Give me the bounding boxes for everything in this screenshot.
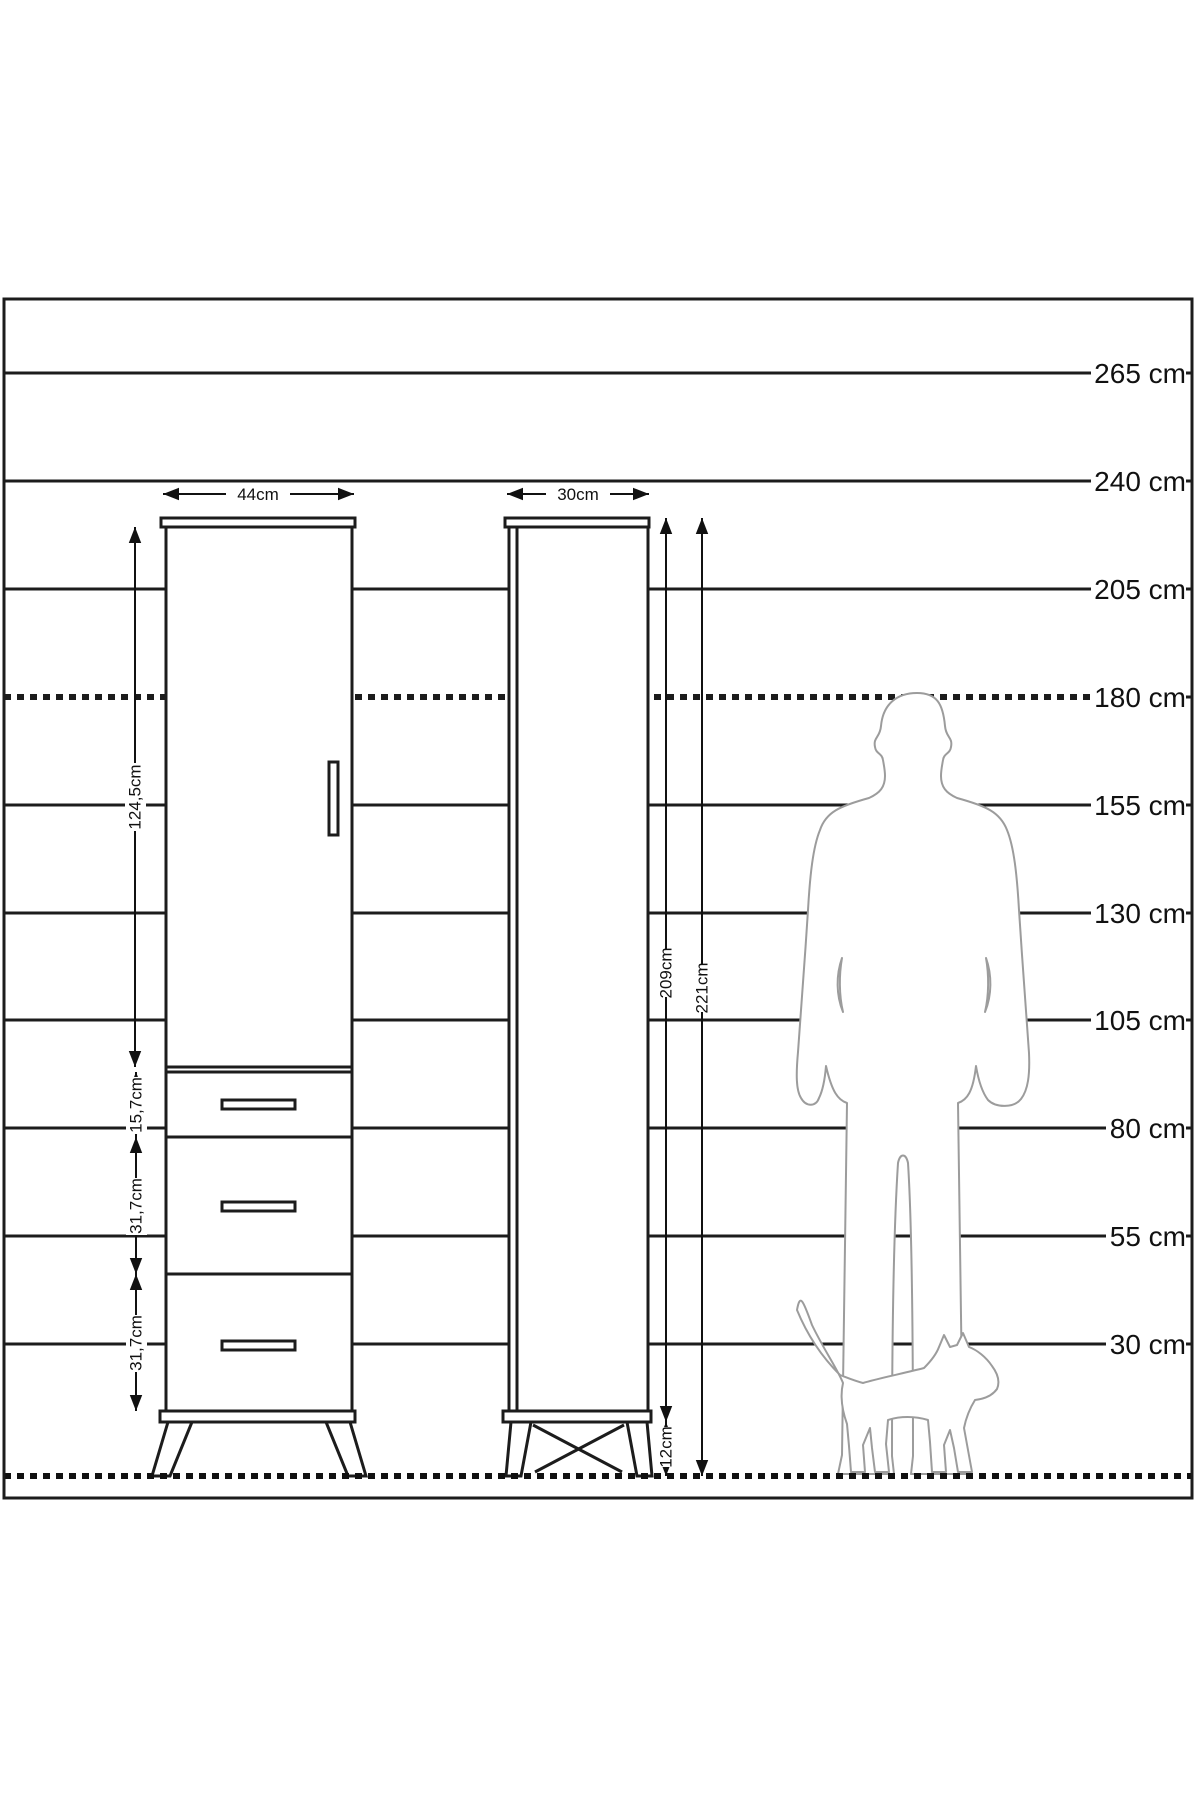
cat-outline	[797, 1301, 998, 1472]
front-body	[166, 527, 352, 1411]
drawer1-height-label: 15,7cm	[127, 1077, 146, 1133]
drawer2-height-label: 31,7cm	[127, 1178, 146, 1234]
person-silhouette	[797, 693, 1029, 1474]
front-bottom-cap	[160, 1411, 355, 1422]
cabinet-side-view	[503, 518, 652, 1476]
scale-label-155: 155 cm	[1094, 790, 1186, 821]
scale-label-80: 80 cm	[1110, 1113, 1186, 1144]
scale-label-130: 130 cm	[1094, 898, 1186, 929]
drawer2-handle	[222, 1202, 295, 1211]
scale-label-30: 30 cm	[1110, 1329, 1186, 1360]
furniture-dimension-diagram: 265 cm240 cm205 cm180 cm155 cm130 cm105 …	[0, 0, 1200, 1800]
scale-label-180: 180 cm	[1094, 682, 1186, 713]
man-outline	[797, 693, 1029, 1474]
front-width-label: 44cm	[237, 485, 279, 504]
front-left-leg	[152, 1422, 192, 1476]
side-left-leg	[506, 1422, 531, 1476]
door-height-label: 124,5cm	[126, 764, 145, 829]
scale-label-265: 265 cm	[1094, 358, 1186, 389]
scale-label-55: 55 cm	[1110, 1221, 1186, 1252]
side-right-leg	[627, 1422, 652, 1476]
side-depth-label: 30cm	[557, 485, 599, 504]
front-right-leg	[326, 1422, 366, 1476]
side-bottom-cap	[503, 1411, 651, 1422]
scale-label-205: 205 cm	[1094, 574, 1186, 605]
scale-label-240: 240 cm	[1094, 466, 1186, 497]
total-height-label: 221cm	[693, 962, 712, 1013]
drawer3-handle	[222, 1341, 295, 1350]
scale-label-105: 105 cm	[1094, 1005, 1186, 1036]
drawer1-handle	[222, 1100, 295, 1109]
drawer3-height-label: 31,7cm	[127, 1315, 146, 1371]
cabinet-front-view	[152, 518, 366, 1476]
body-height-label: 209cm	[657, 947, 676, 998]
side-body	[509, 527, 648, 1411]
door-handle	[329, 762, 338, 835]
cat-silhouette	[797, 1301, 998, 1472]
diagram-canvas: 265 cm240 cm205 cm180 cm155 cm130 cm105 …	[0, 0, 1200, 1800]
leg-height-label: 12cm	[657, 1426, 676, 1468]
